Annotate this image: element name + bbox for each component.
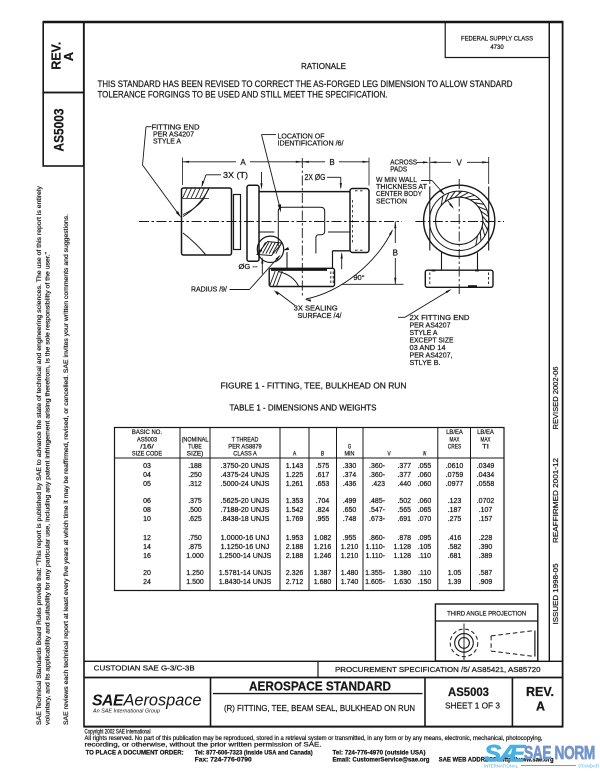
svg-text:03: 03	[143, 463, 151, 470]
svg-text:1.082: 1.082	[314, 535, 332, 542]
svg-text:CRES: CRES	[448, 443, 461, 450]
svg-text:2.188: 2.188	[286, 544, 304, 551]
svg-text:.875: .875	[188, 544, 202, 551]
svg-text:T THREAD: T THREAD	[232, 436, 259, 443]
svg-text:.105: .105	[418, 544, 432, 551]
svg-text:A: A	[240, 158, 246, 167]
svg-text:Email: CustomerService@sae.org: Email: CustomerService@sae.org	[333, 757, 430, 764]
svg-text:TI: TI	[482, 443, 489, 450]
svg-text:.955: .955	[343, 535, 357, 542]
svg-text:FEDERAL SUPPLY CLASS: FEDERAL SUPPLY CLASS	[461, 37, 533, 43]
svg-text:1.216: 1.216	[314, 544, 332, 551]
svg-text:.123: .123	[448, 498, 462, 505]
svg-text:.0610: .0610	[446, 463, 464, 470]
svg-text:.107: .107	[479, 507, 493, 514]
svg-text:.423: .423	[371, 481, 385, 488]
svg-text:1.0000-16 UNJ: 1.0000-16 UNJ	[221, 535, 270, 542]
svg-text:14: 14	[143, 544, 151, 551]
svg-text:TOLERANCE FORGINGS TO BE USED: TOLERANCE FORGINGS TO BE USED AND STILL …	[98, 90, 388, 100]
svg-text:/16/: /16/	[140, 443, 154, 450]
svg-text:.0702: .0702	[477, 498, 495, 505]
svg-text:1.000: 1.000	[186, 553, 204, 560]
svg-text:PER AS8879: PER AS8879	[228, 443, 262, 450]
svg-text:ØG --: ØG --	[239, 262, 259, 271]
svg-text:STANDAR: STANDAR	[578, 763, 600, 768]
svg-text:.390: .390	[479, 544, 493, 551]
svg-text:.060: .060	[418, 481, 432, 488]
svg-text:MAX: MAX	[480, 436, 491, 443]
svg-text:06: 06	[143, 498, 151, 505]
svg-text:1.740: 1.740	[341, 579, 359, 586]
svg-text:1.605-: 1.605-	[365, 579, 386, 586]
svg-text:V: V	[457, 158, 463, 167]
svg-text:12: 12	[143, 535, 151, 542]
svg-text:.110: .110	[418, 553, 431, 560]
svg-text:TUBE: TUBE	[188, 443, 201, 450]
svg-text:1.110-: 1.110-	[366, 553, 386, 560]
svg-text:1.210: 1.210	[341, 544, 359, 551]
svg-text:An SAE International Group: An SAE International Group	[92, 709, 160, 715]
svg-text:SAE: SAE	[92, 693, 125, 710]
svg-text:REV.: REV.	[526, 685, 554, 699]
svg-text:LB/EA: LB/EA	[477, 429, 494, 436]
svg-text:.860-: .860-	[369, 535, 386, 542]
svg-text:.582: .582	[448, 544, 462, 551]
svg-text:2.712: 2.712	[286, 579, 304, 586]
svg-text:.502: .502	[397, 498, 411, 505]
svg-text:1.630: 1.630	[393, 579, 411, 586]
svg-text:.0759: .0759	[446, 472, 464, 479]
svg-text:(R) FITTING, TEE, BEAM SEAL, B: (R) FITTING, TEE, BEAM SEAL, BULKHEAD ON…	[224, 703, 415, 713]
svg-text:1.8430-14 UNJS: 1.8430-14 UNJS	[219, 579, 272, 586]
svg-text:20: 20	[143, 570, 151, 577]
svg-text:1.261: 1.261	[286, 481, 304, 488]
svg-text:A: A	[293, 451, 297, 458]
svg-text:IDENTIFICATION /6/: IDENTIFICATION /6/	[278, 139, 345, 148]
svg-text:24: 24	[143, 579, 151, 586]
svg-text:.436: .436	[343, 481, 357, 488]
svg-text:FIGURE 1 - FITTING, TEE, BULKH: FIGURE 1 - FITTING, TEE, BULKHEAD ON RUN	[221, 381, 407, 391]
svg-text:1.680: 1.680	[314, 579, 332, 586]
svg-text:B: B	[393, 249, 398, 258]
svg-text:TO PLACE A DOCUMENT ORDER:: TO PLACE A DOCUMENT ORDER:	[86, 750, 184, 757]
svg-text:SAE reviews each technical rep: SAE reviews each technical report at lea…	[63, 214, 70, 725]
svg-text:SURFACE /4/: SURFACE /4/	[298, 311, 343, 320]
svg-text:1.128: 1.128	[393, 553, 411, 560]
svg-text:.681: .681	[448, 553, 462, 560]
svg-text:1.500: 1.500	[186, 579, 204, 586]
svg-text:LB/EA: LB/EA	[446, 429, 463, 436]
svg-text:.824: .824	[316, 507, 330, 514]
svg-text:.330: .330	[343, 463, 357, 470]
svg-text:.065: .065	[418, 507, 432, 514]
svg-text:1.110-: 1.110-	[366, 544, 386, 551]
svg-text:05: 05	[143, 481, 151, 488]
svg-text:.673-: .673-	[369, 516, 386, 523]
svg-text:.4375-24 UNJS: .4375-24 UNJS	[221, 472, 270, 479]
svg-text:1.39: 1.39	[448, 579, 462, 586]
svg-text:G: G	[348, 443, 351, 450]
svg-text:2X ØG: 2X ØG	[305, 173, 326, 182]
svg-text:.440: .440	[397, 481, 411, 488]
svg-text:RADIUS /9/: RADIUS /9/	[191, 285, 228, 294]
svg-text:(NOMINAL: (NOMINAL	[182, 436, 209, 443]
svg-text:PROCUREMENT SPECIFICATION /5/: PROCUREMENT SPECIFICATION /5/ AS85421, A…	[335, 665, 541, 674]
svg-text:.312: .312	[188, 481, 202, 488]
svg-text:.375: .375	[188, 498, 202, 505]
svg-text:STLYE B.: STLYE B.	[410, 358, 441, 367]
svg-text:SAE Technical Standards Board: SAE Technical Standards Board Rules prov…	[36, 185, 43, 725]
svg-text:.485-: .485-	[369, 498, 386, 505]
svg-text:.5625-20 UNJS: .5625-20 UNJS	[221, 498, 270, 505]
svg-text:1.128: 1.128	[393, 544, 411, 551]
svg-text:1.250: 1.250	[186, 570, 204, 577]
svg-text:1.225: 1.225	[286, 472, 304, 479]
svg-text:SECTION: SECTION	[376, 196, 407, 205]
svg-text:.250: .250	[188, 472, 202, 479]
svg-text:RATIONALE: RATIONALE	[301, 61, 346, 71]
svg-text:.275: .275	[448, 516, 462, 523]
svg-text:3X (T): 3X (T)	[223, 171, 248, 180]
svg-text:.625: .625	[188, 516, 202, 523]
svg-text:.547-: .547-	[369, 507, 386, 514]
svg-text:ISSUED 1998-05: ISSUED 1998-05	[551, 564, 560, 625]
svg-text:.691: .691	[397, 516, 411, 523]
svg-text:.110: .110	[418, 570, 431, 577]
svg-text:1.769: 1.769	[286, 516, 304, 523]
svg-text:BASIC NO.: BASIC NO.	[132, 429, 162, 436]
svg-text:.878: .878	[397, 535, 411, 542]
svg-text:1.2500-14 UNJS: 1.2500-14 UNJS	[219, 553, 272, 560]
svg-text:.187: .187	[448, 507, 462, 514]
svg-text:PADS: PADS	[390, 165, 407, 174]
svg-text:1.210: 1.210	[341, 553, 359, 560]
svg-text:1.355-: 1.355-	[365, 570, 386, 577]
svg-text:REAFFIRMED 2001-12: REAFFIRMED 2001-12	[551, 458, 560, 543]
svg-text:B: B	[321, 451, 324, 458]
svg-text:.060: .060	[418, 498, 432, 505]
svg-text:V: V	[387, 451, 391, 458]
svg-text:1.143: 1.143	[286, 463, 304, 470]
svg-text:SIZE): SIZE)	[187, 451, 204, 458]
svg-text:.565: .565	[397, 507, 411, 514]
svg-text:Tel: 724-776-4970 (outside USA: Tel: 724-776-4970 (outside USA)	[333, 750, 426, 757]
svg-text:.704: .704	[316, 498, 330, 505]
svg-text:.955: .955	[316, 516, 330, 523]
svg-text:.8438-18 UNJS: .8438-18 UNJS	[221, 516, 270, 523]
svg-text:SÆ: SÆ	[484, 741, 526, 768]
svg-text:.0349: .0349	[477, 463, 495, 470]
svg-text:.617: .617	[316, 472, 330, 479]
svg-text:SIZE CODE: SIZE CODE	[132, 451, 162, 458]
svg-text:All rights reserved. No part o: All rights reserved. No part of this pub…	[85, 736, 543, 742]
svg-text:.060: .060	[418, 472, 432, 479]
svg-text:4730: 4730	[490, 45, 504, 51]
svg-text:1.5781-14 UNJS: 1.5781-14 UNJS	[219, 570, 272, 577]
svg-text:voluntary, and its applicabili: voluntary, and its applicability and sui…	[44, 251, 51, 725]
svg-text:AS5003: AS5003	[448, 687, 489, 699]
svg-text:AS5003: AS5003	[51, 108, 67, 151]
svg-text:.909: .909	[479, 579, 493, 586]
svg-text:B: B	[329, 158, 334, 167]
svg-text:.3750-20 UNJS: .3750-20 UNJS	[221, 463, 270, 470]
svg-text:CUSTODIAN SAE G-3/C-3B: CUSTODIAN SAE G-3/C-3B	[94, 664, 195, 673]
svg-text:Copyright 2002 SAE Internation: Copyright 2002 SAE International	[85, 730, 151, 736]
svg-text:AS5003: AS5003	[137, 436, 157, 443]
svg-text:STYLE A: STYLE A	[153, 137, 181, 146]
svg-text:.0558: .0558	[477, 481, 495, 488]
svg-text:10: 10	[143, 516, 151, 523]
svg-text:W: W	[423, 451, 427, 458]
svg-text:.7188-20 UNJS: .7188-20 UNJS	[221, 507, 270, 514]
svg-text:A: A	[61, 51, 76, 61]
svg-text:.748: .748	[343, 516, 357, 523]
svg-text:.360-: .360-	[369, 472, 386, 479]
svg-text:.0977: .0977	[446, 481, 464, 488]
svg-text:.360-: .360-	[369, 463, 386, 470]
svg-text:.500: .500	[188, 507, 202, 514]
svg-text:.157: .157	[479, 516, 493, 523]
svg-text:Aerospace: Aerospace	[123, 692, 202, 710]
svg-text:.575: .575	[316, 463, 330, 470]
svg-text:16: 16	[143, 553, 151, 560]
svg-text:1.953: 1.953	[286, 535, 304, 542]
svg-text:.150: .150	[418, 579, 432, 586]
svg-text:1.387: 1.387	[314, 570, 332, 577]
svg-text:A: A	[536, 700, 545, 714]
svg-text:.5000-24 UNJS: .5000-24 UNJS	[221, 481, 270, 488]
svg-text:.389: .389	[479, 553, 493, 560]
svg-text:.377: .377	[397, 472, 411, 479]
svg-text:CLASS A: CLASS A	[233, 451, 257, 458]
svg-text:THIS STANDARD HAS BEEN REVISED: THIS STANDARD HAS BEEN REVISED TO CORREC…	[98, 79, 513, 89]
svg-text:AEROSPACE STANDARD: AEROSPACE STANDARD	[249, 680, 391, 694]
svg-text:90°: 90°	[353, 273, 364, 282]
svg-text:.095: .095	[418, 535, 432, 542]
svg-text:.416: .416	[448, 535, 462, 542]
svg-text:REVISED 2002-06: REVISED 2002-06	[551, 367, 560, 430]
svg-text:1.1250-16 UNJ: 1.1250-16 UNJ	[221, 544, 270, 551]
svg-text:.377: .377	[397, 463, 411, 470]
svg-text:INTERNATIONAL: INTERNATIONAL	[484, 764, 518, 770]
svg-text:04: 04	[143, 472, 151, 479]
svg-text:2.326: 2.326	[286, 570, 304, 577]
svg-text:1.480: 1.480	[341, 570, 359, 577]
svg-text:.650: .650	[343, 507, 357, 514]
svg-text:MIN: MIN	[344, 451, 354, 458]
svg-text:.374: .374	[343, 472, 357, 479]
svg-text:1.246: 1.246	[314, 553, 332, 560]
svg-text:.750: .750	[188, 535, 202, 542]
svg-text:THIRD ANGLE PROJECTION: THIRD ANGLE PROJECTION	[447, 611, 526, 618]
svg-text:.070: .070	[418, 516, 432, 523]
svg-text:TABLE 1 - DIMENSIONS AND WEIGH: TABLE 1 - DIMENSIONS AND WEIGHTS	[230, 404, 377, 413]
svg-text:1.05: 1.05	[448, 570, 462, 577]
svg-text:1.380: 1.380	[393, 570, 411, 577]
svg-text:SHEET 1 OF 3: SHEET 1 OF 3	[445, 701, 500, 711]
svg-text:1.353: 1.353	[286, 498, 304, 505]
svg-text:.055: .055	[418, 463, 432, 470]
svg-text:.499: .499	[343, 498, 357, 505]
svg-text:.0434: .0434	[477, 472, 495, 479]
svg-text:.228: .228	[479, 535, 493, 542]
svg-text:SAE NORM: SAE NORM	[524, 742, 595, 763]
svg-text:.653: .653	[316, 481, 330, 488]
svg-text:.188: .188	[188, 463, 202, 470]
svg-text:Tel: 877-606-7323 (inside USA: Tel: 877-606-7323 (inside USA and Canada…	[195, 750, 313, 757]
svg-text:2.188: 2.188	[286, 553, 304, 560]
svg-text:recording, or otherwise, witho: recording, or otherwise, without the pri…	[85, 743, 322, 749]
svg-text:08: 08	[143, 507, 151, 514]
svg-text:MAX: MAX	[449, 436, 460, 443]
svg-text:1.542: 1.542	[286, 507, 304, 514]
svg-text:.587: .587	[479, 570, 493, 577]
svg-text:Fax: 724-776-0790: Fax: 724-776-0790	[195, 757, 252, 764]
